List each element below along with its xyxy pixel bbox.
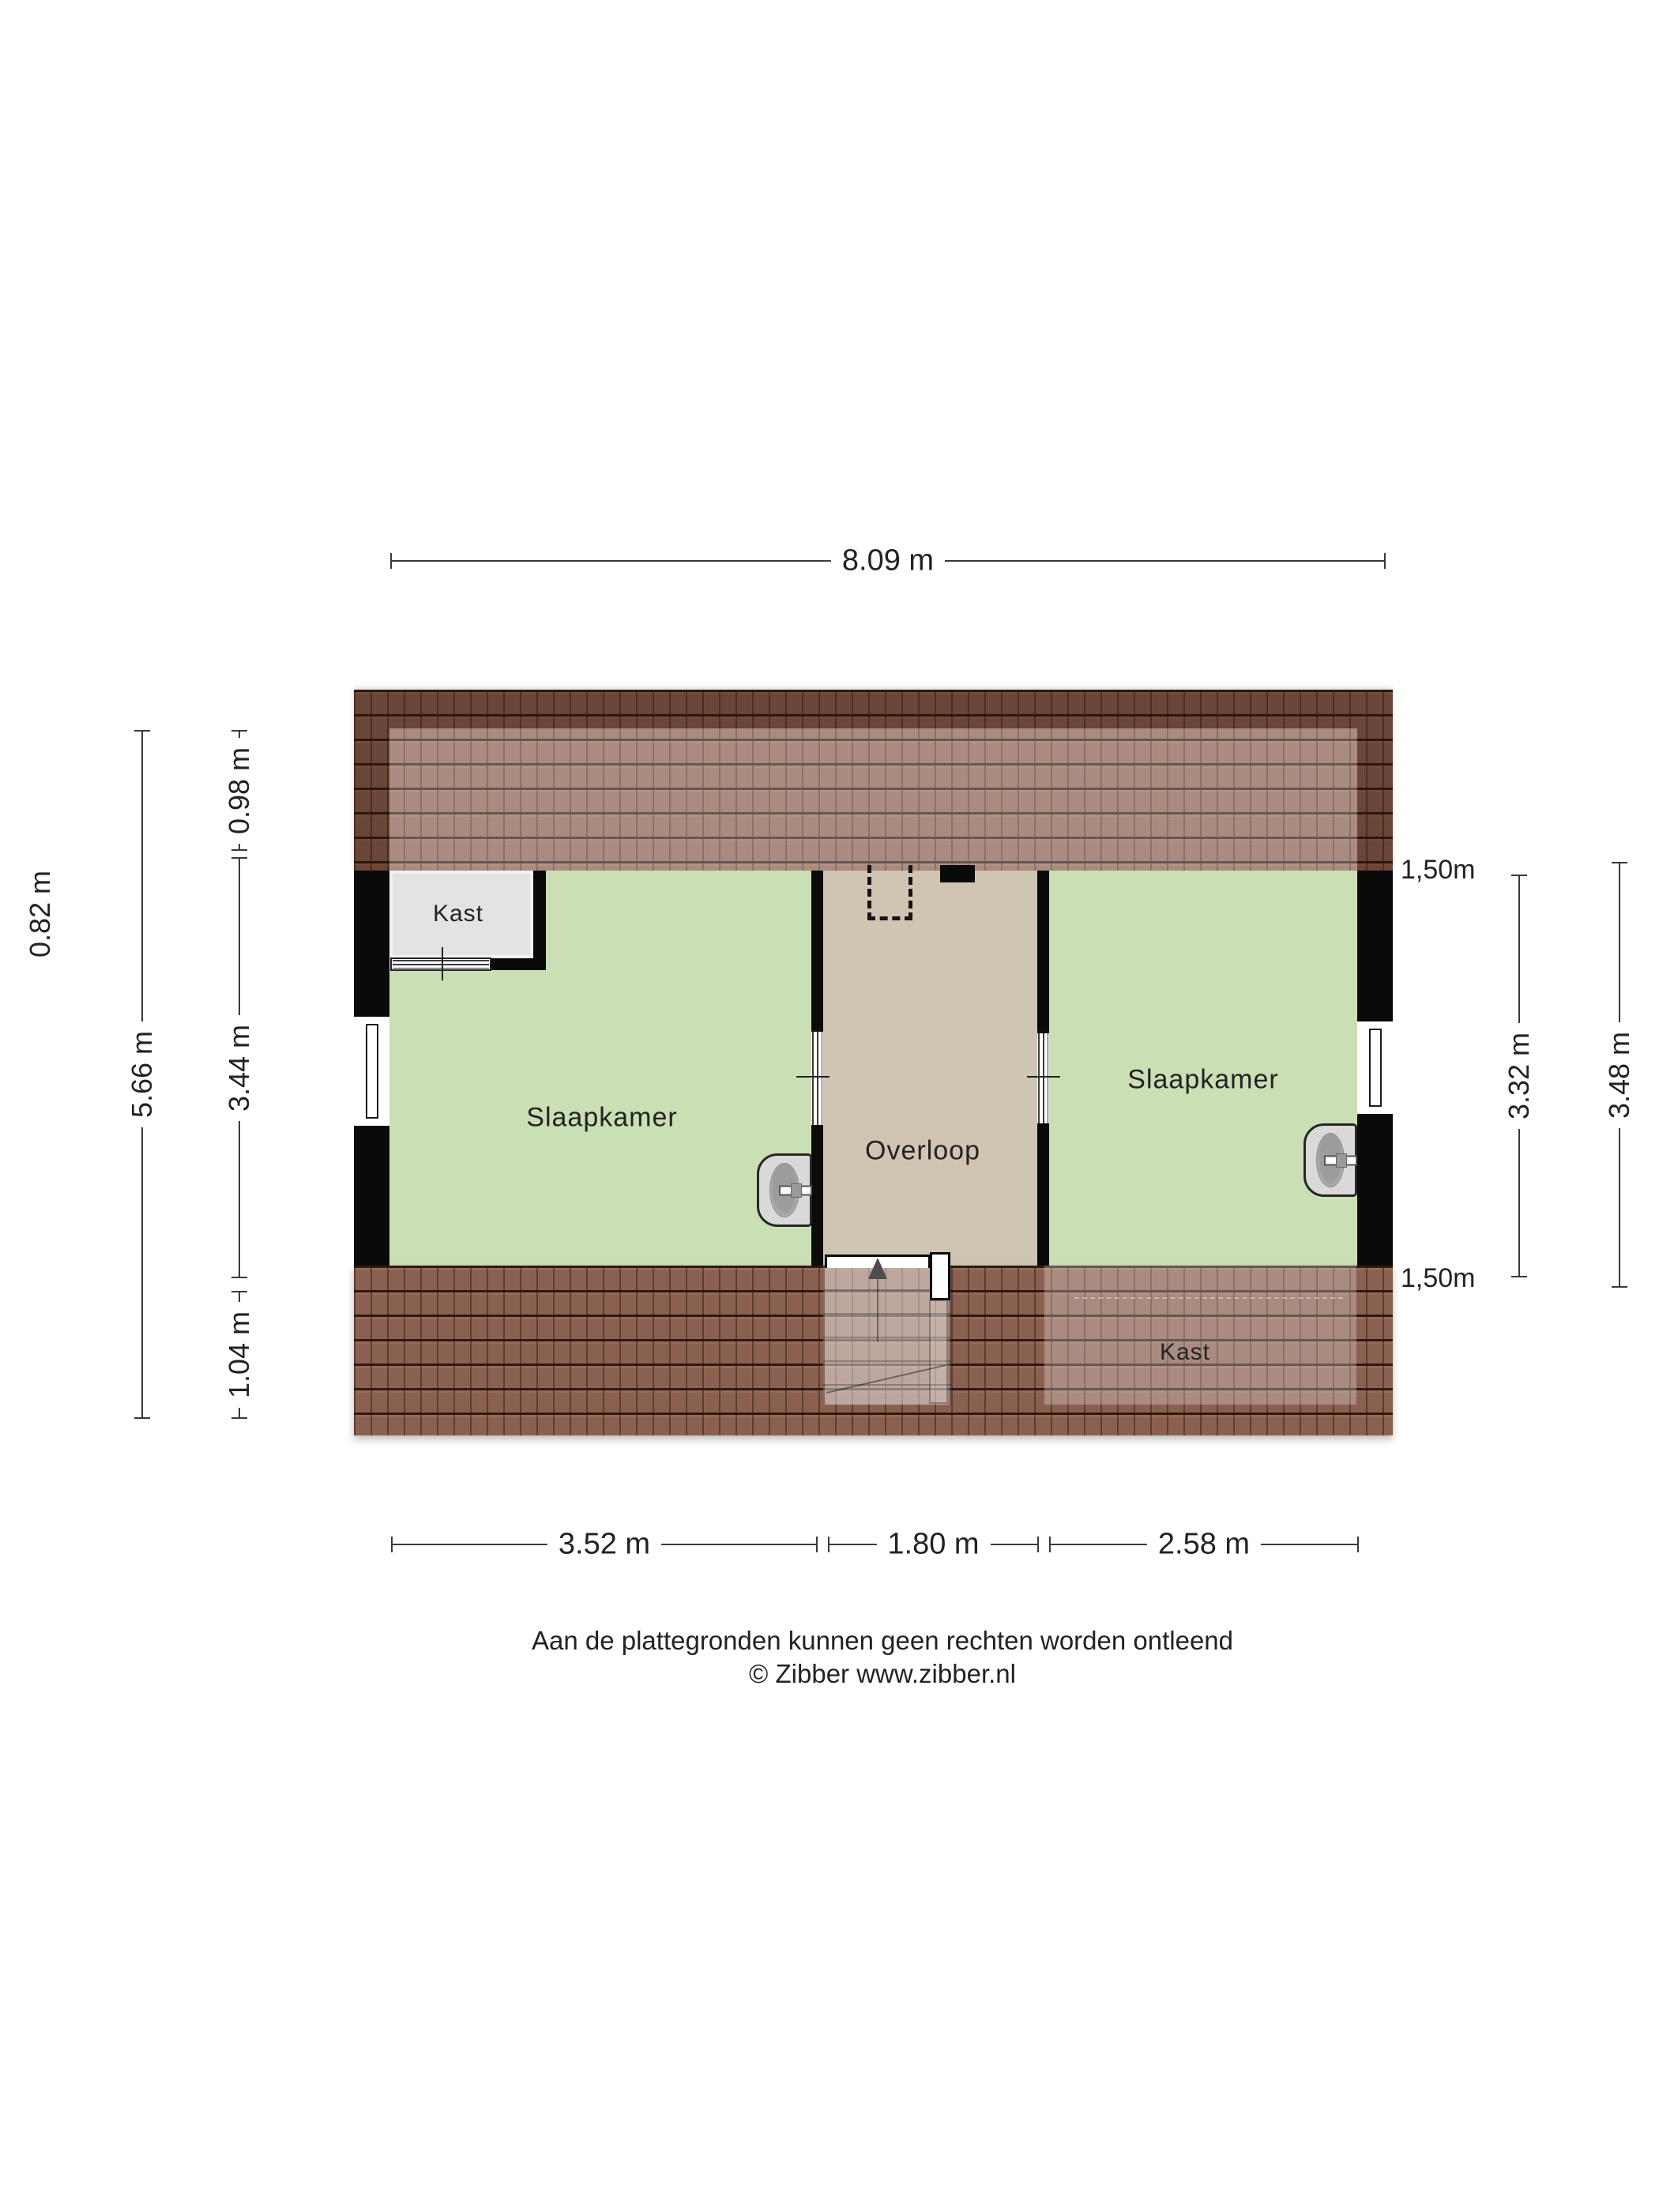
stairs-direction-arrow-icon xyxy=(868,1258,887,1279)
dim-left-total-label: 5.66 m xyxy=(124,1021,160,1127)
label-bedroom-right: Slaapkamer xyxy=(1127,1065,1278,1096)
closet-bottom-dashed-line xyxy=(1074,1297,1343,1299)
dim-left-bottom: 1.04 m xyxy=(239,1291,240,1419)
roof-bottom-light-closet xyxy=(1044,1266,1356,1405)
window-frame-icon xyxy=(366,1024,378,1119)
dim-right-knee-bottom-label: 1,50m xyxy=(1401,1263,1476,1294)
roof-opening-dashed xyxy=(867,865,912,920)
dim-right-knee-top-label: 1,50m xyxy=(1401,855,1476,886)
wall-closet-right xyxy=(533,871,546,970)
dim-left-overhang-label: 0.82 m xyxy=(24,871,57,957)
dim-left-top: 0.98 m xyxy=(239,730,240,851)
dim-bottom-right: 2.58 m xyxy=(1049,1544,1359,1545)
dim-bottom-middle: 1.80 m xyxy=(828,1544,1039,1545)
dim-right-inner: 3.32 m xyxy=(1518,875,1520,1277)
dim-left-total: 5.66 m xyxy=(141,730,143,1419)
wall-landing-left-upper xyxy=(811,871,823,1029)
dim-right-outer-label: 3.48 m xyxy=(1601,1021,1638,1127)
door-hatch-icon xyxy=(812,1032,822,1127)
wall-stub-landing-top xyxy=(940,865,975,882)
dim-top-width-label: 8.09 m xyxy=(831,543,945,580)
roof-band-top xyxy=(354,690,1393,871)
sink-knob-icon xyxy=(1336,1153,1347,1168)
window-symbol-left xyxy=(354,1017,389,1126)
closet-door-symbol xyxy=(390,957,491,971)
dim-right-inner-label: 3.32 m xyxy=(1501,1023,1537,1129)
sink-bedroom-left xyxy=(757,1153,812,1227)
closet-door-tick xyxy=(442,947,443,980)
door-hatch-icon xyxy=(1038,1033,1048,1126)
wall-landing-left-lower xyxy=(811,1125,823,1266)
wall-exterior-right-lower xyxy=(1357,1114,1393,1266)
window-frame-icon xyxy=(1369,1029,1382,1107)
label-landing: Overloop xyxy=(865,1136,980,1167)
door-swing-tick-left xyxy=(796,1076,829,1078)
dim-bottom-middle-label: 1.80 m xyxy=(876,1526,990,1563)
dim-bottom-left: 3.52 m xyxy=(391,1544,818,1545)
wall-landing-right-lower xyxy=(1037,1123,1049,1266)
sink-knob-icon xyxy=(791,1183,802,1198)
wall-exterior-right-upper xyxy=(1357,871,1393,1021)
stairs-arrow-stem xyxy=(877,1279,878,1342)
closet-door-hatch-icon xyxy=(393,960,489,969)
door-swing-tick-right xyxy=(1027,1076,1060,1078)
dim-right-outer: 3.48 m xyxy=(1619,862,1620,1288)
wall-landing-right-upper xyxy=(1037,871,1049,1031)
room-landing xyxy=(823,871,1037,1266)
label-closet-bottom: Kast xyxy=(1160,1339,1210,1366)
staircase-newel-box xyxy=(930,1252,950,1300)
footer-credit: © Zibber www.zibber.nl xyxy=(749,1659,1016,1689)
dim-left-top-label: 0.98 m xyxy=(221,737,258,843)
wall-exterior-left-lower xyxy=(354,1126,389,1266)
dim-left-middle-label: 3.44 m xyxy=(221,1014,258,1120)
dim-bottom-right-label: 2.58 m xyxy=(1147,1526,1261,1563)
sink-bedroom-right xyxy=(1303,1123,1357,1197)
dim-left-middle: 3.44 m xyxy=(239,857,240,1278)
roof-top-light-strip xyxy=(389,728,1357,871)
door-opening-landing-left xyxy=(811,1029,823,1130)
wall-closet-bottom xyxy=(490,958,546,970)
floorplan-page: 8.09 m xyxy=(0,0,1659,2212)
wall-exterior-left-upper xyxy=(354,871,389,1017)
roof-top-dark-strip xyxy=(354,690,1393,728)
roof-top-right-corner xyxy=(1357,728,1393,871)
dim-top-width: 8.09 m xyxy=(390,560,1386,562)
staircase-rail xyxy=(929,1300,948,1404)
footer-disclaimer: Aan de plattegronden kunnen geen rechten… xyxy=(532,1626,1233,1656)
label-closet-top: Kast xyxy=(433,901,483,927)
roof-top-left-corner xyxy=(354,728,389,871)
dim-bottom-left-label: 3.52 m xyxy=(547,1526,661,1563)
window-symbol-right xyxy=(1357,1021,1393,1114)
dim-left-bottom-label: 1.04 m xyxy=(221,1302,258,1408)
door-opening-landing-right xyxy=(1037,1031,1049,1128)
label-bedroom-left: Slaapkamer xyxy=(526,1103,677,1134)
